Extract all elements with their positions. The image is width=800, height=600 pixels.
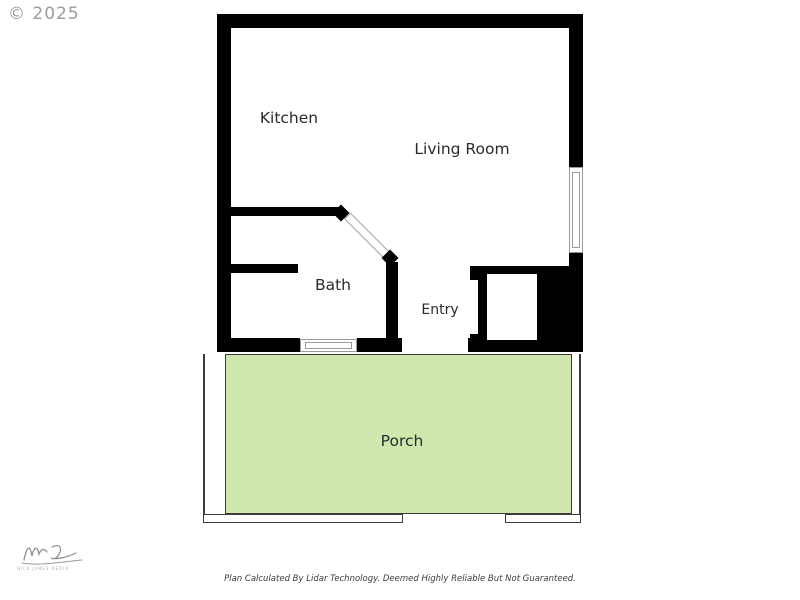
bath-window (300, 339, 357, 352)
bath-right-wall (386, 262, 398, 338)
exterior-wall-left (217, 14, 231, 352)
room-label-entry: Entry (421, 302, 458, 318)
room-label-living-room: Living Room (414, 140, 509, 158)
copyright-watermark: © 2025 (8, 4, 80, 24)
living-room-window (569, 167, 583, 253)
exterior-wall-top (217, 14, 583, 28)
disclaimer-text: Plan Calculated By Lidar Technology. Dee… (0, 574, 800, 584)
bath-doorway-opening (344, 213, 390, 259)
signature-logo (18, 540, 88, 566)
interior-wall-kitchen-bath (231, 207, 341, 216)
exterior-wall-bottom-seg2 (357, 338, 402, 352)
closet-door-jamb-bottom (470, 334, 479, 348)
porch-railing-right (579, 354, 581, 523)
porch-railing-left (203, 354, 205, 523)
porch-railing-bottom-left (203, 514, 403, 523)
signature-subtext: NICK JAMES MEDIA (17, 566, 69, 571)
floor-plan-page: © 2025 Kitchen Living Room Bath Entry Po… (0, 0, 800, 600)
entry-closet-interior (487, 274, 537, 340)
window-pane (572, 172, 580, 248)
porch-railing-bottom-right (505, 514, 581, 523)
window-pane (305, 342, 352, 349)
entry-door-opening (402, 338, 468, 354)
interior-wall-hall-stub (231, 264, 298, 273)
closet-door-jamb-top (470, 266, 479, 280)
room-label-kitchen: Kitchen (260, 109, 318, 127)
room-label-bath: Bath (315, 276, 351, 294)
exterior-wall-bottom-seg1 (217, 338, 300, 352)
exterior-wall-right-upper (569, 14, 583, 167)
room-label-porch: Porch (381, 432, 424, 450)
